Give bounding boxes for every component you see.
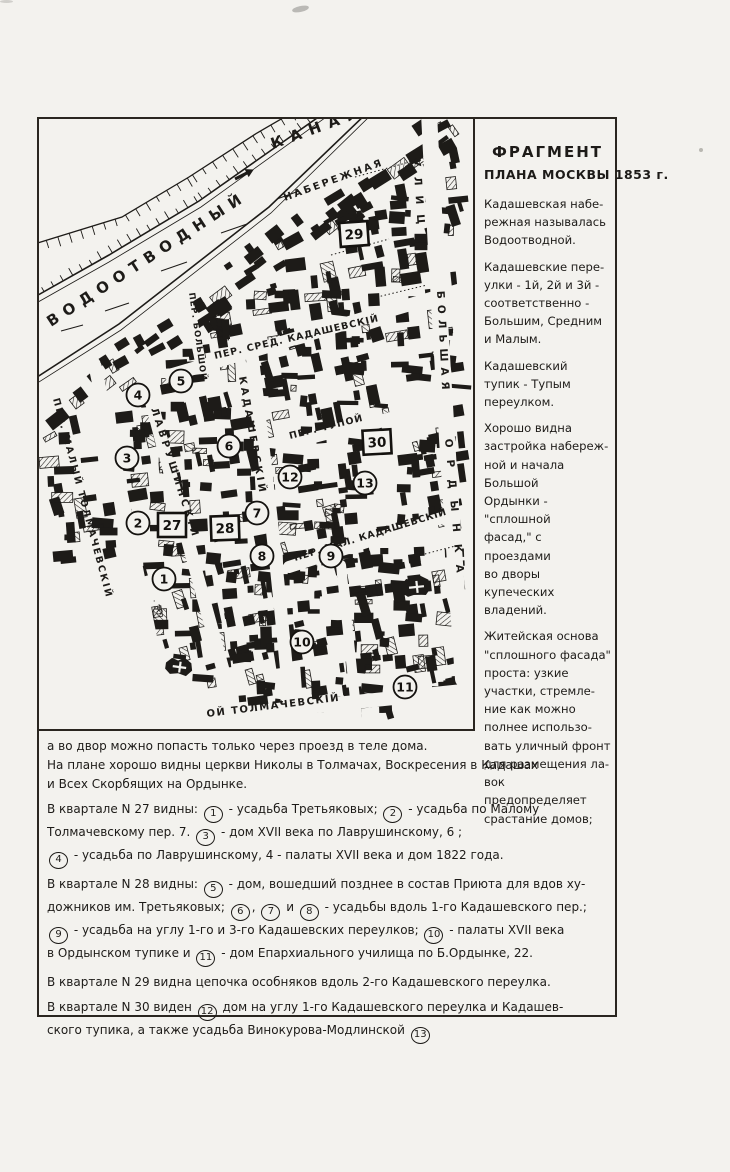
- circled-number: 2: [383, 806, 402, 823]
- circled-number: 1: [204, 806, 223, 823]
- note-line: 4 - усадьба по Лаврушинскому, 4 - палаты…: [47, 846, 609, 869]
- svg-text:7: 7: [253, 506, 262, 521]
- svg-text:11: 11: [396, 680, 413, 695]
- scan-smudge: [699, 148, 703, 152]
- legend-paragraph: Хорошо видна застройка набереж- ной и на…: [484, 419, 611, 619]
- note-line: дожников им. Третьяковых; 6, 7 и 8 - уса…: [47, 898, 609, 921]
- scanned-page: ВОДООТВОДНЫЙ КАНАЛ НАБЕРЕЖНАЯ ПЕР. МАЛЫЙ…: [0, 0, 730, 1172]
- map-marker-circle-8: 8: [251, 545, 274, 568]
- svg-text:4: 4: [134, 388, 143, 403]
- plan-frame: ВОДООТВОДНЫЙ КАНАЛ НАБЕРЕЖНАЯ ПЕР. МАЛЫЙ…: [37, 117, 617, 1017]
- note-paragraph: В квартале N 29 видна цепочка особняков …: [47, 973, 609, 992]
- circled-number: 11: [196, 950, 215, 967]
- svg-text:10: 10: [293, 635, 311, 650]
- map-marker-circle-13: 13: [354, 472, 377, 495]
- note-line: в Ордынском тупике и 11 - дом Епархиальн…: [47, 944, 609, 967]
- svg-text:12: 12: [281, 470, 298, 485]
- map-marker-circle-11: 11: [394, 676, 417, 699]
- map-marker-circle-9: 9: [320, 545, 343, 568]
- legend-paragraph: Кадашевская набе- режная называлась Водо…: [484, 195, 611, 250]
- map-marker-circle-1: 1: [153, 568, 176, 591]
- circled-number: 5: [204, 881, 223, 898]
- svg-text:5: 5: [177, 374, 186, 389]
- map-marker-circle-7: 7: [246, 502, 269, 525]
- circled-number: 12: [198, 1004, 217, 1021]
- circled-number: 7: [261, 904, 280, 921]
- legend-column: ФРАГМЕНТ ПЛАНА МОСКВЫ 1853 г. Кадашевска…: [475, 119, 615, 836]
- map-marker-circle-2: 2: [127, 512, 150, 535]
- circled-number: 6: [231, 904, 250, 921]
- note-paragraph: В квартале N 28 видны: 5 - дом, вошедший…: [47, 875, 609, 967]
- note-line: В квартале N 30 виден 12 дом на углу 1-г…: [47, 998, 609, 1021]
- map-area: ВОДООТВОДНЫЙ КАНАЛ НАБЕРЕЖНАЯ ПЕР. МАЛЫЙ…: [39, 119, 475, 731]
- svg-text:28: 28: [215, 521, 234, 538]
- map-marker-circle-6: 6: [218, 435, 241, 458]
- map-marker-circle-3: 3: [116, 447, 139, 470]
- legend-title: ФРАГМЕНТ: [484, 143, 611, 161]
- notes-block: а во двор можно попасть только через про…: [47, 737, 609, 1050]
- note-paragraph: а во двор можно попасть только через про…: [47, 737, 609, 794]
- svg-text:13: 13: [356, 476, 373, 491]
- map-marker-square-27: 27: [158, 513, 186, 537]
- city-map: ВОДООТВОДНЫЙ КАНАЛ НАБЕРЕЖНАЯ ПЕР. МАЛЫЙ…: [39, 119, 473, 729]
- map-marker-circle-10: 10: [291, 631, 314, 654]
- map-marker-circle-4: 4: [127, 384, 150, 407]
- svg-text:8: 8: [258, 549, 267, 564]
- svg-text:9: 9: [327, 549, 336, 564]
- svg-text:6: 6: [225, 439, 234, 454]
- circled-number: 10: [424, 927, 443, 944]
- map-marker-square-30: 30: [362, 429, 391, 454]
- note-line: В квартале N 29 видна цепочка особняков …: [47, 973, 609, 992]
- map-marker-circle-5: 5: [170, 370, 193, 393]
- map-marker-square-28: 28: [211, 516, 240, 541]
- note-line: Толмачевскому пер. 7. 3 - дом XVII века …: [47, 823, 609, 846]
- note-line: На плане хорошо видны церкви Николы в То…: [47, 756, 609, 775]
- note-line: и Всех Скорбящих на Ордынке.: [47, 775, 609, 794]
- note-line: 9 - усадьба на углу 1-го и 3-го Кадашевс…: [47, 921, 609, 944]
- circled-number: 4: [49, 852, 68, 869]
- map-marker-square-29: 29: [339, 221, 369, 247]
- circled-number: 9: [49, 927, 68, 944]
- legend-paragraph: Кадашевский тупик - Тупым переулком.: [484, 357, 611, 412]
- note-line: а во двор можно попасть только через про…: [47, 737, 609, 756]
- svg-text:3: 3: [123, 451, 132, 466]
- svg-text:30: 30: [367, 435, 387, 452]
- note-line: В квартале N 28 видны: 5 - дом, вошедший…: [47, 875, 609, 898]
- legend-subtitle: ПЛАНА МОСКВЫ 1853 г.: [484, 167, 611, 182]
- note-paragraph: В квартале N 27 видны: 1 - усадьба Треть…: [47, 800, 609, 869]
- svg-text:29: 29: [344, 226, 364, 243]
- legend-paragraph: Кадашевские пере- улки - 1й, 2й и 3й - с…: [484, 258, 611, 349]
- scan-smudge: [292, 4, 310, 13]
- note-line: ского тупика, а также усадьба Винокурова…: [47, 1021, 609, 1044]
- map-marker-circle-12: 12: [279, 466, 302, 489]
- svg-text:1: 1: [160, 572, 169, 587]
- svg-text:27: 27: [163, 518, 182, 534]
- circled-number: 8: [300, 904, 319, 921]
- note-line: В квартале N 27 видны: 1 - усадьба Треть…: [47, 800, 609, 823]
- circled-number: 13: [411, 1027, 430, 1044]
- circled-number: 3: [196, 829, 215, 846]
- svg-text:2: 2: [134, 516, 143, 531]
- scan-smudge: [0, 0, 13, 3]
- note-paragraph: В квартале N 30 виден 12 дом на углу 1-г…: [47, 998, 609, 1044]
